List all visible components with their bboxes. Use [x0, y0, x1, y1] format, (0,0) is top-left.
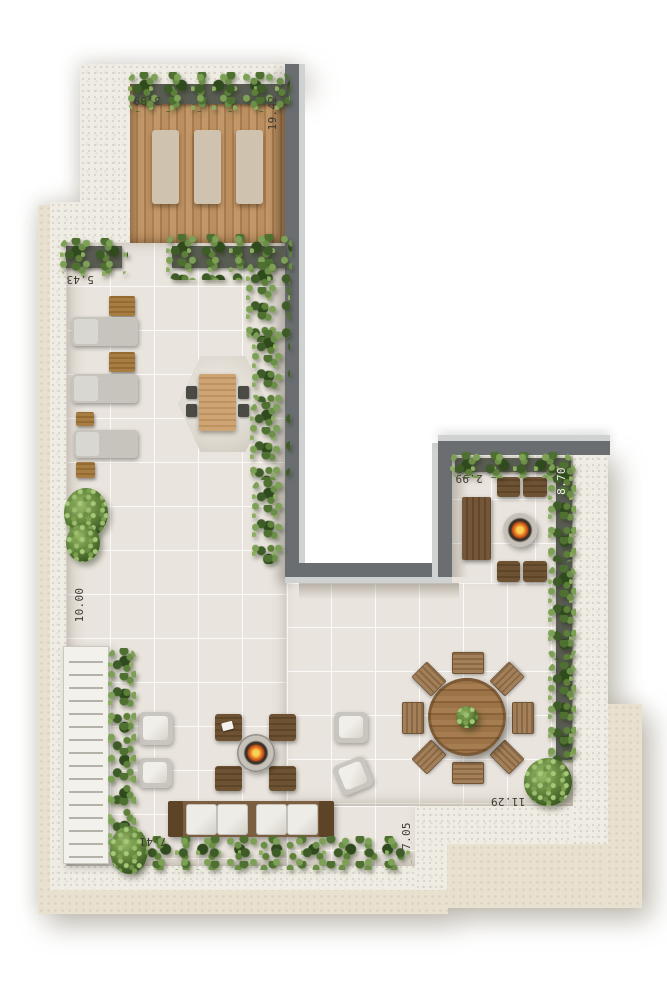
dimension-label-upper-terrace: 5.43	[60, 272, 100, 286]
roof-ledge-right	[606, 704, 642, 908]
lounge-ottoman	[269, 766, 296, 791]
parapet-right	[572, 450, 608, 844]
fire-terrace-bench	[462, 497, 491, 560]
lounge-armchair	[334, 712, 368, 743]
stair-treads	[69, 650, 103, 860]
dimension-label-deck-top: 3.89	[127, 93, 167, 107]
plants-right-column	[548, 662, 576, 762]
terrace-lounger	[72, 374, 138, 403]
deck-sun-lounger	[152, 130, 179, 204]
dining-chair	[452, 652, 484, 674]
lounger-headrest	[74, 319, 98, 344]
umbrella-chair	[186, 404, 197, 417]
fire-terrace-chair	[497, 477, 520, 497]
wall-shadow-lower	[299, 583, 459, 599]
shrub-left-small	[66, 524, 100, 562]
lounger-headrest	[74, 376, 98, 401]
dimension-label-deck-side: 19.42	[266, 93, 280, 133]
parapet-bottom-right	[415, 806, 577, 844]
fire-pit	[503, 513, 537, 547]
floor-plan: 3.89 19.42 5.43 10.00 2.99 8.70 11.29 7.…	[0, 0, 667, 1000]
sofa-arm	[168, 801, 183, 837]
roof-ledge-bottom	[38, 886, 448, 914]
table-centerpiece-plant	[456, 706, 478, 728]
sofa-cushion	[186, 804, 217, 835]
sofa-cushion	[287, 804, 318, 835]
plants-upper-left	[60, 238, 128, 276]
deck-sun-lounger	[194, 130, 221, 204]
dimension-label-left-side: 10.00	[73, 585, 87, 625]
umbrella-chair	[186, 386, 197, 399]
dimension-label-right-side: 8.70	[555, 461, 569, 501]
dimension-label-fire-terrace: 2.99	[449, 471, 489, 485]
fire-pit	[237, 734, 275, 772]
wall-cutout-bottom	[285, 563, 452, 577]
dining-chair	[402, 702, 424, 734]
umbrella-table	[199, 374, 236, 431]
fire-terrace-chair	[523, 477, 547, 497]
sofa-arm	[319, 801, 334, 837]
umbrella-chair	[238, 386, 249, 399]
staircase	[63, 646, 109, 864]
dimension-label-lower-left: 7.41	[133, 834, 173, 848]
lounge-armchair	[138, 758, 172, 788]
side-table	[109, 352, 135, 372]
lounge-ottoman	[215, 766, 242, 791]
sofa-cushion	[217, 804, 248, 835]
side-table	[76, 412, 94, 426]
side-table	[76, 462, 95, 478]
plants-right-column	[548, 565, 576, 660]
lounger-headrest	[76, 432, 99, 456]
sofa-cushion	[256, 804, 287, 835]
plants-wall-column	[250, 402, 290, 480]
fire-terrace-chair	[497, 561, 520, 582]
lounge-armchair	[138, 712, 173, 745]
fire-terrace-chair	[523, 561, 547, 582]
side-table	[109, 296, 135, 316]
plants-wall-column	[252, 330, 290, 402]
plants-wall-column	[252, 480, 288, 564]
dining-chair	[452, 762, 484, 784]
terrace-lounger	[74, 430, 138, 458]
shrub-bottom-right	[524, 758, 572, 806]
dimension-label-lower-right: 11.29	[488, 794, 528, 808]
parapet-deck-left	[80, 64, 130, 206]
dimension-label-lower-side: 7.05	[400, 816, 414, 856]
umbrella-chair	[238, 404, 249, 417]
deck-sun-lounger	[236, 130, 263, 204]
terrace-lounger	[72, 317, 138, 346]
lounge-ottoman	[269, 714, 296, 741]
dining-chair	[512, 702, 534, 734]
